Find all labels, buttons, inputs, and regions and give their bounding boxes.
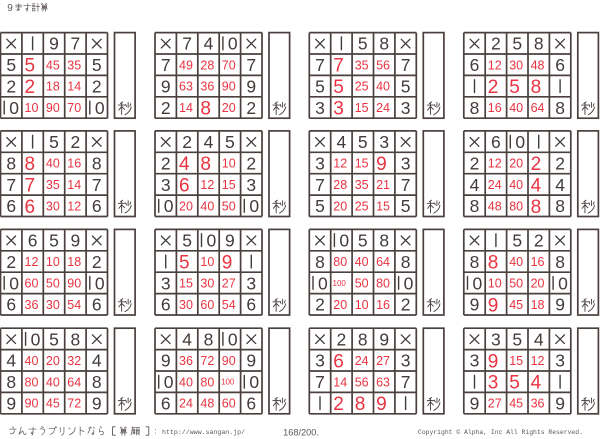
svg-text:3: 3 [333,99,344,120]
svg-text:9: 9 [488,351,499,372]
svg-text:63: 63 [376,375,390,389]
svg-text:30: 30 [46,199,60,213]
svg-text:2: 2 [315,295,325,315]
svg-text:7: 7 [25,175,36,196]
svg-text:8: 8 [6,372,16,392]
svg-text:72: 72 [67,397,81,411]
svg-text:2: 2 [401,295,411,315]
svg-text:3: 3 [379,132,389,152]
svg-text:48: 48 [200,397,214,411]
svg-text:7: 7 [401,55,411,75]
svg-text:3: 3 [491,329,501,349]
svg-text:50: 50 [222,199,236,213]
svg-text:7: 7 [6,175,16,195]
svg-text:7: 7 [315,55,325,75]
svg-text:9: 9 [92,394,102,414]
svg-text:0: 0 [95,98,105,118]
svg-text:15: 15 [355,157,369,171]
svg-text:8: 8 [534,34,544,54]
svg-text:8: 8 [555,98,565,118]
svg-text:6: 6 [161,394,171,414]
svg-text:25: 25 [355,80,369,94]
svg-text:12: 12 [488,58,502,72]
svg-text:90: 90 [222,354,236,368]
svg-text:3: 3 [401,153,411,173]
svg-text:3: 3 [488,373,499,394]
svg-text:27: 27 [376,354,390,368]
svg-text:9: 9 [555,394,565,414]
svg-text:2: 2 [555,153,565,173]
svg-text:6: 6 [179,175,190,196]
svg-text:2: 2 [92,252,102,272]
svg-text:6: 6 [470,55,480,75]
svg-text:9: 9 [161,77,171,97]
svg-text:8: 8 [358,329,368,349]
svg-text:7: 7 [246,55,256,75]
svg-text:10: 10 [355,298,369,312]
svg-text:56: 56 [355,375,369,389]
svg-text:5: 5 [358,132,368,152]
svg-text:2: 2 [333,394,344,415]
svg-text:2: 2 [491,34,501,54]
svg-text:2: 2 [161,98,171,118]
svg-text:2: 2 [337,329,347,349]
svg-text:2: 2 [246,98,256,118]
svg-text:3: 3 [315,98,325,118]
svg-text:8: 8 [204,329,214,349]
svg-text:20: 20 [333,298,347,312]
svg-text:0: 0 [473,273,483,293]
svg-text:24: 24 [179,397,193,411]
svg-text:8: 8 [200,99,211,120]
svg-text:72: 72 [200,354,214,368]
svg-text:14: 14 [333,375,347,389]
svg-text:5: 5 [49,231,59,251]
svg-text:40: 40 [46,375,60,389]
svg-text:20: 20 [46,354,60,368]
svg-text:7: 7 [182,34,192,54]
svg-text:20: 20 [509,157,523,171]
svg-text:54: 54 [67,298,81,312]
svg-text:30: 30 [46,298,60,312]
svg-text:4: 4 [204,132,214,152]
svg-text:5: 5 [509,77,520,98]
svg-text:7: 7 [161,55,171,75]
svg-text:40: 40 [46,157,60,171]
svg-text:8: 8 [555,252,565,272]
svg-text:9: 9 [488,295,499,316]
svg-text:2: 2 [25,77,36,98]
svg-text:168/200.: 168/200. [283,428,319,438]
svg-text:6: 6 [92,295,102,315]
svg-text:50: 50 [509,277,523,291]
svg-text:25: 25 [355,199,369,213]
svg-text:7: 7 [315,175,325,195]
svg-text:4: 4 [531,175,542,196]
svg-text:90: 90 [46,101,60,115]
svg-text:64: 64 [376,255,390,269]
svg-text:40: 40 [509,255,523,269]
svg-text:35: 35 [46,178,60,192]
svg-text:6: 6 [333,351,344,372]
svg-text:40: 40 [509,178,523,192]
svg-text:2: 2 [6,77,16,97]
svg-text:6: 6 [25,197,36,218]
svg-text:8: 8 [379,231,389,251]
svg-text:9: 9 [470,295,480,315]
svg-text:18: 18 [67,255,81,269]
svg-text:7: 7 [333,56,344,77]
svg-text:9: 9 [379,329,389,349]
svg-text:2: 2 [531,154,542,175]
svg-text:5: 5 [25,56,36,77]
svg-text:24: 24 [355,354,369,368]
svg-text:8: 8 [470,196,480,216]
svg-text:4: 4 [204,34,214,54]
svg-text:0: 0 [404,273,414,293]
svg-text:6: 6 [6,295,16,315]
svg-text:2: 2 [161,153,171,173]
svg-text:5: 5 [401,196,411,216]
svg-text:5: 5 [512,231,522,251]
svg-text:6: 6 [28,231,38,251]
svg-text:21: 21 [376,178,390,192]
svg-text:60: 60 [200,298,214,312]
svg-text:5: 5 [182,231,192,251]
svg-text:3: 3 [315,351,325,371]
svg-text:10: 10 [25,101,39,115]
svg-text:49: 49 [179,58,193,72]
svg-text:20: 20 [179,199,193,213]
svg-text:9: 9 [71,231,81,251]
svg-text:2: 2 [6,252,16,272]
svg-text:90: 90 [222,80,236,94]
svg-text:8: 8 [531,77,542,98]
svg-text:5: 5 [315,196,325,216]
svg-text:15: 15 [376,199,390,213]
svg-text:2: 2 [488,77,499,98]
svg-text:64: 64 [531,101,545,115]
svg-text:9: 9 [6,394,16,414]
svg-text:7: 7 [71,34,81,54]
svg-text:5: 5 [512,329,522,349]
svg-text:80: 80 [25,375,39,389]
svg-text:6: 6 [246,295,256,315]
svg-text:8: 8 [470,98,480,118]
svg-text:80: 80 [376,277,390,291]
svg-text:8: 8 [315,252,325,272]
svg-text:54: 54 [222,298,236,312]
svg-text:20: 20 [222,101,236,115]
svg-text:15: 15 [509,354,523,368]
svg-text:8: 8 [555,196,565,216]
svg-text:50: 50 [46,277,60,291]
svg-text:2: 2 [71,132,81,152]
svg-text:6: 6 [491,132,501,152]
svg-text:Copyright © Alpha, Inc All Rig: Copyright © Alpha, Inc All Rights Reserv… [418,428,583,436]
svg-text:8: 8 [92,372,102,392]
svg-text:40: 40 [509,101,523,115]
svg-text:2: 2 [246,153,256,173]
svg-text:8: 8 [470,252,480,272]
svg-text:30: 30 [200,277,214,291]
svg-text:27: 27 [488,397,502,411]
svg-text:56: 56 [376,58,390,72]
svg-text:45: 45 [509,298,523,312]
svg-text:7: 7 [92,175,102,195]
svg-text:60: 60 [25,277,39,291]
svg-text:30: 30 [179,298,193,312]
svg-text:9: 9 [246,351,256,371]
svg-text:9: 9 [7,3,13,14]
svg-text:70: 70 [222,58,236,72]
svg-text:9: 9 [376,154,387,175]
svg-text:40: 40 [355,255,369,269]
svg-text:50: 50 [355,277,369,291]
svg-text:5: 5 [333,77,344,98]
svg-text:0: 0 [164,196,174,216]
svg-text:20: 20 [531,277,545,291]
svg-text:5: 5 [358,34,368,54]
svg-text:3: 3 [246,175,256,195]
svg-text:4: 4 [337,132,347,152]
svg-text:80: 80 [200,375,214,389]
svg-text:0: 0 [249,196,259,216]
svg-text:7: 7 [315,372,325,392]
svg-text:100: 100 [333,279,347,288]
svg-text:15: 15 [179,277,193,291]
svg-text:5: 5 [225,132,235,152]
svg-text:5: 5 [49,329,59,349]
svg-text:40: 40 [25,354,39,368]
svg-text:32: 32 [67,354,81,368]
svg-text:90: 90 [67,277,81,291]
svg-text:4: 4 [92,351,102,371]
svg-text:10: 10 [222,157,236,171]
svg-text:3: 3 [161,175,171,195]
svg-text:12: 12 [200,178,214,192]
svg-text:5: 5 [315,77,325,97]
svg-text:9: 9 [470,394,480,414]
svg-text:9: 9 [161,351,171,371]
svg-text:0: 0 [95,273,105,293]
svg-text:40: 40 [200,199,214,213]
svg-text:5: 5 [509,373,520,394]
svg-text:48: 48 [531,58,545,72]
svg-text:12: 12 [488,157,502,171]
svg-text:12: 12 [67,199,81,213]
svg-text:8: 8 [531,197,542,218]
svg-text:24: 24 [488,178,502,192]
svg-text:9: 9 [555,295,565,315]
svg-text:8: 8 [6,153,16,173]
svg-text:0: 0 [228,34,238,54]
svg-text:16: 16 [376,298,390,312]
svg-text:0: 0 [9,98,19,118]
svg-text:8: 8 [379,34,389,54]
svg-text:28: 28 [333,178,347,192]
svg-text:8: 8 [488,253,499,274]
svg-text:0: 0 [164,372,174,392]
svg-text:2: 2 [182,132,192,152]
svg-text:14: 14 [67,80,81,94]
svg-text:2: 2 [534,231,544,251]
svg-text:8: 8 [25,154,36,175]
svg-text:3: 3 [246,273,256,293]
svg-text:35: 35 [355,58,369,72]
svg-text:6: 6 [555,55,565,75]
svg-text:20: 20 [333,199,347,213]
svg-text:36: 36 [25,298,39,312]
svg-text:4: 4 [179,154,190,175]
svg-text:36: 36 [531,397,545,411]
svg-text:9: 9 [376,394,387,415]
svg-text:8: 8 [92,153,102,173]
svg-text:35: 35 [355,178,369,192]
svg-text:27: 27 [222,277,236,291]
svg-text:30: 30 [509,58,523,72]
svg-text:5: 5 [401,77,411,97]
svg-text:3: 3 [401,351,411,371]
svg-text:8: 8 [355,394,366,415]
svg-text:4: 4 [555,175,565,195]
svg-text:12: 12 [333,157,347,171]
svg-text:3: 3 [315,153,325,173]
svg-text:8: 8 [401,252,411,272]
svg-text:4: 4 [531,373,542,394]
svg-text:5: 5 [49,132,59,152]
svg-text:36: 36 [200,80,214,94]
svg-text:45: 45 [46,58,60,72]
svg-text:0: 0 [228,329,238,349]
svg-text:15: 15 [355,101,369,115]
svg-text:9: 9 [222,253,233,274]
svg-text:80: 80 [333,255,347,269]
svg-text:0: 0 [207,231,217,251]
svg-text:3: 3 [161,273,171,293]
svg-text:4: 4 [470,175,480,195]
svg-text:5: 5 [512,34,522,54]
svg-text:15: 15 [222,178,236,192]
svg-text:7: 7 [401,372,411,392]
svg-text:5: 5 [92,55,102,75]
svg-text:10: 10 [488,277,502,291]
svg-text:18: 18 [46,80,60,94]
svg-text:3: 3 [555,351,565,371]
svg-text:0: 0 [318,273,328,293]
svg-text:http://www.sangan.jp/: http://www.sangan.jp/ [162,429,245,436]
svg-text:24: 24 [376,101,390,115]
svg-text:35: 35 [67,58,81,72]
svg-text:5: 5 [6,55,16,75]
svg-text:0: 0 [249,372,259,392]
svg-text:5: 5 [358,231,368,251]
svg-text:14: 14 [179,101,193,115]
svg-text:0: 0 [9,273,19,293]
svg-text:90: 90 [25,397,39,411]
svg-text:8: 8 [71,329,81,349]
svg-text:9: 9 [49,34,59,54]
svg-text:10: 10 [46,255,60,269]
svg-text:40: 40 [376,80,390,94]
svg-text:7: 7 [401,175,411,195]
svg-text:0: 0 [339,231,349,251]
svg-text:16: 16 [67,157,81,171]
svg-text:12: 12 [25,255,39,269]
svg-text:6: 6 [161,295,171,315]
svg-text:0: 0 [558,273,568,293]
svg-text:80: 80 [509,199,523,213]
svg-text::: : [155,427,157,436]
svg-text:4: 4 [534,329,544,349]
svg-text:3: 3 [470,351,480,371]
svg-text:2: 2 [470,153,480,173]
svg-text:12: 12 [531,354,545,368]
svg-text:36: 36 [179,354,193,368]
svg-text:16: 16 [531,255,545,269]
svg-text:48: 48 [488,199,502,213]
svg-text:6: 6 [6,196,16,216]
svg-text:6: 6 [92,196,102,216]
svg-text:14: 14 [67,178,81,192]
svg-text:45: 45 [46,397,60,411]
svg-text:5: 5 [179,253,190,274]
svg-text:0: 0 [31,329,41,349]
svg-text:9: 9 [246,77,256,97]
svg-text:4: 4 [6,351,16,371]
svg-text:4: 4 [182,329,192,349]
svg-text:63: 63 [179,80,193,94]
svg-text:0: 0 [515,132,525,152]
svg-text:16: 16 [488,101,502,115]
svg-text:2: 2 [92,77,102,97]
svg-text:45: 45 [509,397,523,411]
svg-text:64: 64 [67,375,81,389]
svg-text:6: 6 [246,394,256,414]
svg-text:100: 100 [221,378,235,387]
svg-text:18: 18 [531,298,545,312]
svg-text:40: 40 [179,375,193,389]
svg-text:28: 28 [200,58,214,72]
svg-text:70: 70 [67,101,81,115]
svg-text:60: 60 [222,397,236,411]
svg-text:8: 8 [200,154,211,175]
svg-text:10: 10 [200,255,214,269]
svg-text:9: 9 [225,231,235,251]
svg-text:3: 3 [401,98,411,118]
